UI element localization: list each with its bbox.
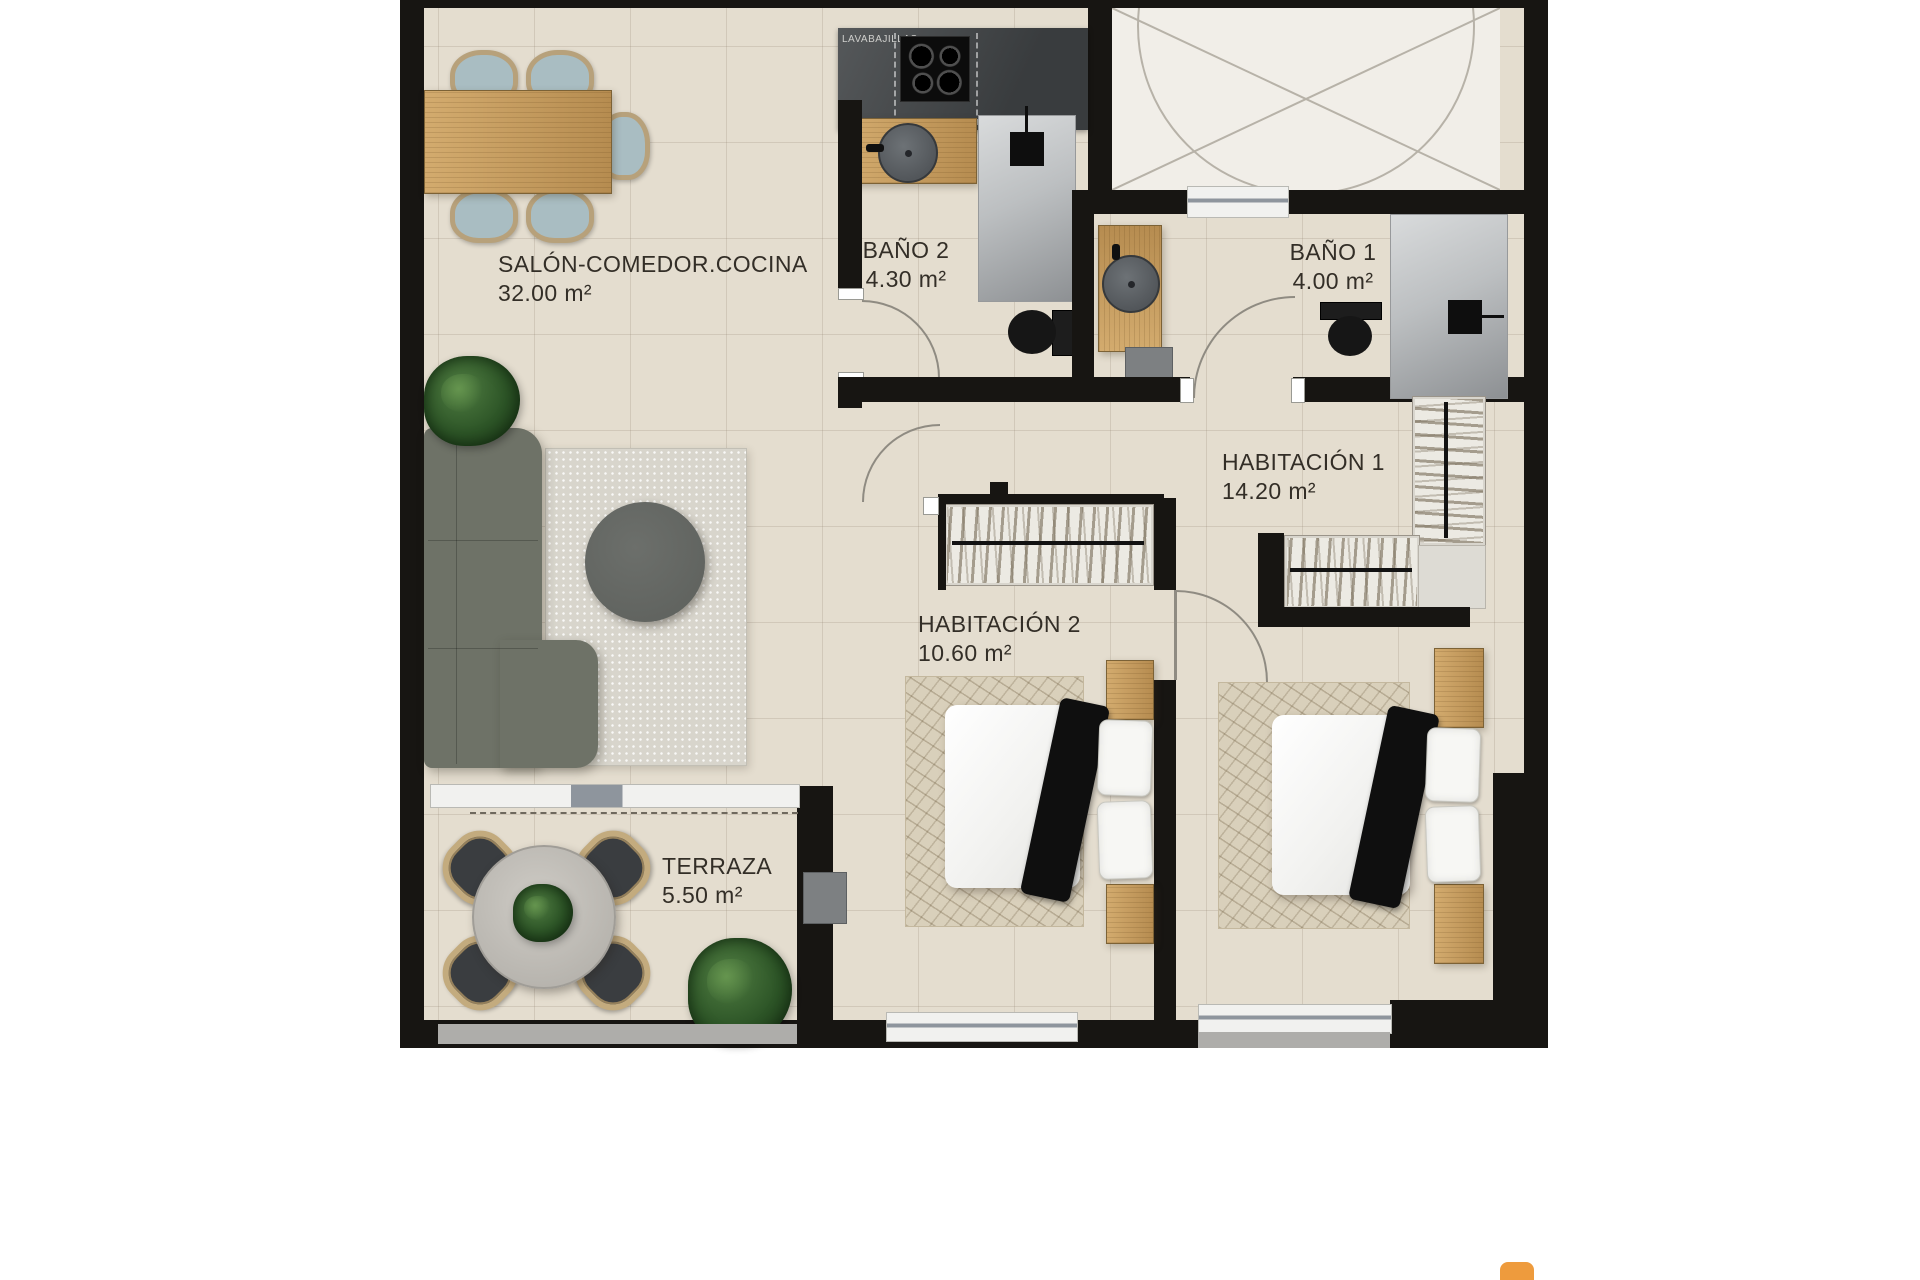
cooktop-icon	[900, 36, 970, 102]
bathroom1-showerhead-icon	[1448, 300, 1482, 334]
nightstand	[1434, 884, 1484, 964]
sofa-cushion-seam	[428, 648, 538, 649]
room-name: TERRAZA	[662, 852, 772, 881]
wall-outer-top	[400, 0, 1548, 8]
wall-void-left	[1088, 0, 1112, 214]
room-label-bano2: BAÑO 2 4.30 m²	[846, 236, 966, 295]
nightstand	[1106, 660, 1154, 720]
room-area: 14.20 m²	[1222, 477, 1385, 506]
sofa-cushion-seam	[428, 540, 538, 541]
pillow	[1097, 719, 1154, 797]
bathroom2-showerhead-icon	[1010, 132, 1044, 166]
dining-chair	[450, 188, 518, 243]
sofa-chaise	[500, 640, 598, 768]
wall-jog-bottom-right	[1390, 1000, 1548, 1048]
room-label-hab1: HABITACIÓN 1 14.20 m²	[1222, 448, 1385, 507]
terrace-railing	[438, 1024, 797, 1044]
door-jamb	[1180, 378, 1194, 403]
wall-bedrooms-lower	[1154, 680, 1176, 1020]
room-name: HABITACIÓN 1	[1222, 448, 1385, 477]
wardrobe-hab2	[944, 504, 1154, 586]
wardrobe-rail	[1290, 568, 1412, 572]
window-hab1	[1198, 1004, 1392, 1034]
bathroom1-shower-arm	[1482, 315, 1504, 318]
closet-corner-panel	[1418, 545, 1486, 609]
room-name: BAÑO 1	[1270, 238, 1396, 267]
wardrobe-rail	[1444, 402, 1448, 538]
pillow	[1425, 805, 1482, 883]
void-room-markings	[1112, 8, 1500, 190]
nook-sink	[1102, 255, 1160, 313]
bathroom2-faucet-icon	[866, 144, 884, 152]
wall-bedrooms-upper	[1154, 498, 1176, 590]
room-name: SALÓN-COMEDOR.COCINA	[498, 250, 808, 279]
wall-under-closets	[1258, 607, 1470, 627]
counter-divider	[976, 33, 978, 125]
room-name: BAÑO 2	[846, 236, 966, 265]
dining-table	[424, 90, 612, 194]
ac-unit-icon	[803, 872, 847, 924]
terrace-boundary-dashed	[470, 812, 798, 814]
nightstand	[1434, 648, 1484, 728]
wall-void-bottom	[1088, 190, 1524, 214]
door-hinge-block	[990, 482, 1008, 498]
window-hab2	[886, 1012, 1078, 1042]
dining-chair	[526, 188, 594, 243]
door-leaf-hab1	[1174, 590, 1177, 680]
nightstand	[1106, 884, 1154, 944]
counter-divider	[894, 33, 896, 125]
logo-fragment	[1500, 1262, 1534, 1280]
wardrobe-hab1-horizontal	[1284, 535, 1420, 609]
window-void-room	[1187, 186, 1289, 218]
room-area: 5.50 m²	[662, 881, 772, 910]
window-sill	[1198, 1032, 1390, 1048]
wardrobe-hab2-frame-left	[938, 504, 946, 590]
wall-hall-top-left	[838, 377, 1190, 402]
wardrobe-hab2-frame-top	[938, 494, 1164, 504]
bathroom2-toilet	[1008, 310, 1056, 354]
wall-outer-left	[400, 0, 424, 1048]
room-area: 4.30 m²	[846, 265, 966, 294]
room-area: 10.60 m²	[918, 639, 1081, 668]
pillow	[1097, 800, 1154, 880]
wall-nook-left	[1072, 190, 1094, 402]
room-label-bano1: BAÑO 1 4.00 m²	[1270, 238, 1396, 297]
room-label-salon: SALÓN-COMEDOR.COCINA 32.00 m²	[498, 250, 808, 309]
pillow	[1425, 727, 1482, 803]
sofa-backrest-seam	[456, 434, 457, 764]
wardrobe-hab1-vertical	[1412, 396, 1486, 546]
window-salon-terrace	[430, 784, 800, 808]
room-label-hab2: HABITACIÓN 2 10.60 m²	[918, 610, 1081, 669]
wardrobe-rail	[952, 541, 1144, 545]
floor-plan: LAVABAJILLAS	[400, 0, 1548, 1048]
bathroom2-shower-arm	[1025, 106, 1028, 132]
room-label-terraza: TERRAZA 5.50 m²	[662, 852, 772, 911]
room-name: HABITACIÓN 2	[918, 610, 1081, 639]
bathroom1-toilet	[1328, 316, 1372, 356]
nook-faucet-icon	[1112, 244, 1120, 260]
room-area: 4.00 m²	[1270, 267, 1396, 296]
room-area: 32.00 m²	[498, 279, 808, 308]
bathroom2-sink	[878, 123, 938, 183]
void-room-floor	[1112, 8, 1500, 190]
coffee-table	[585, 502, 705, 622]
floor-plan-page: LAVABAJILLAS	[0, 0, 1920, 1280]
